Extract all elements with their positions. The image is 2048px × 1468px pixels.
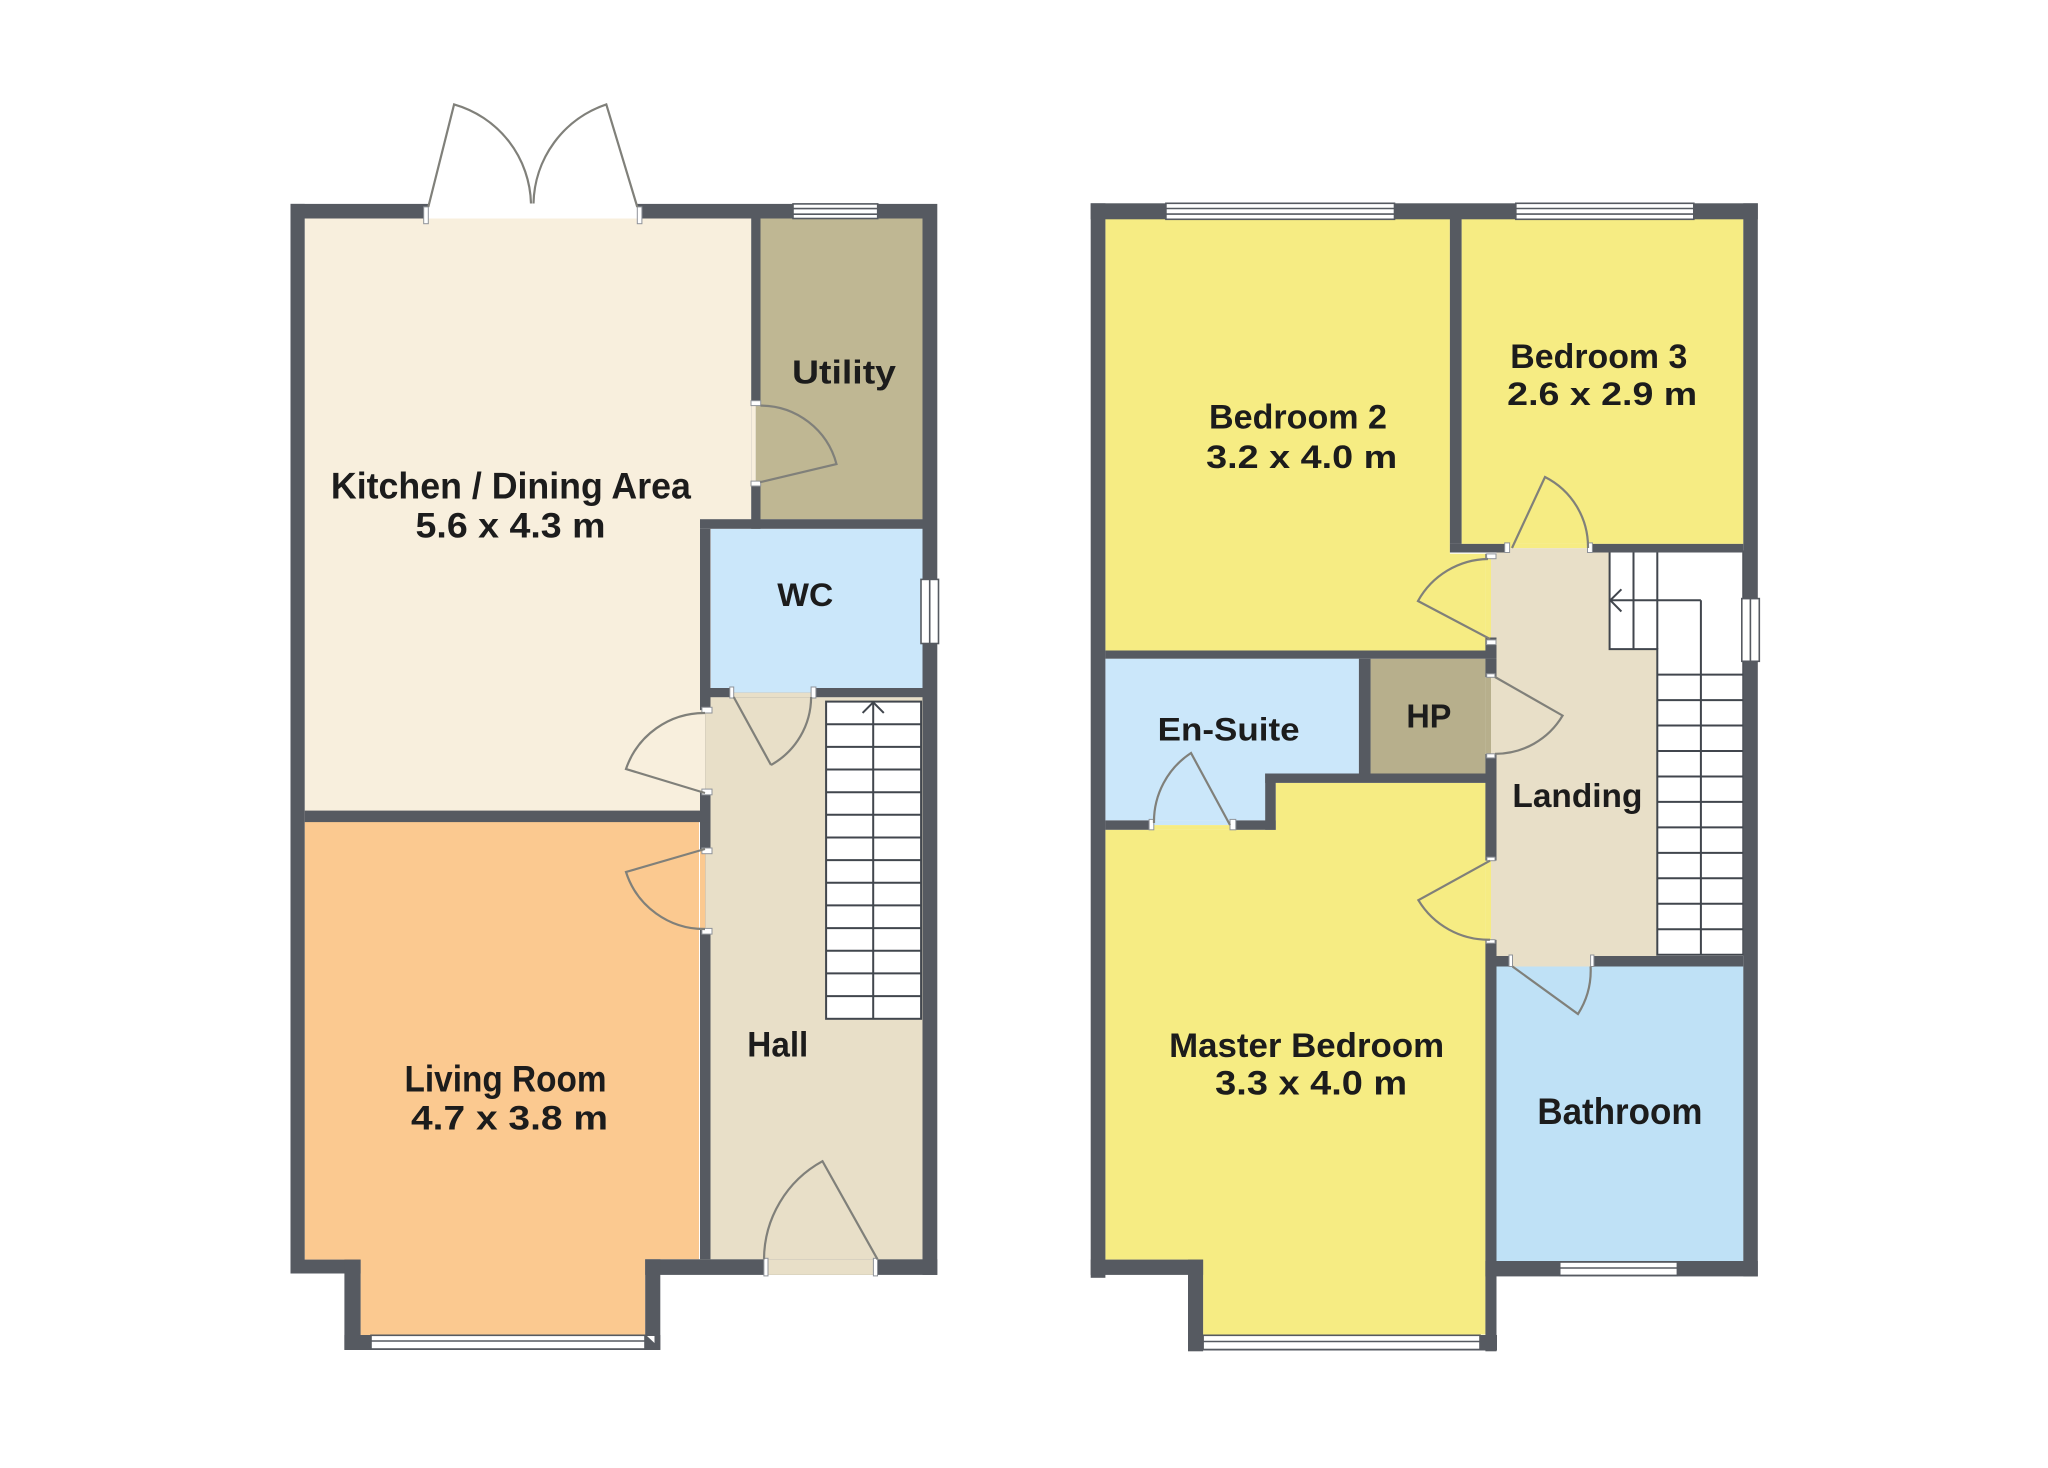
svg-text:3.3 x 4.0 m: 3.3 x 4.0 m: [1215, 1064, 1407, 1102]
svg-text:Master Bedroom: Master Bedroom: [1169, 1027, 1444, 1065]
svg-text:Living Room: Living Room: [405, 1057, 607, 1099]
svg-text:En-Suite: En-Suite: [1158, 712, 1300, 748]
svg-text:Hall: Hall: [747, 1025, 808, 1065]
svg-text:Landing: Landing: [1512, 777, 1642, 815]
svg-text:Bathroom: Bathroom: [1537, 1091, 1702, 1132]
svg-text:Bedroom 3: Bedroom 3: [1510, 338, 1687, 376]
svg-text:Bedroom 2: Bedroom 2: [1209, 398, 1387, 436]
svg-text:3.2 x 4.0 m: 3.2 x 4.0 m: [1206, 439, 1397, 475]
svg-text:Utility: Utility: [792, 354, 897, 391]
svg-text:4.7 x 3.8 m: 4.7 x 3.8 m: [411, 1100, 608, 1138]
svg-text:Kitchen / Dining Area: Kitchen / Dining Area: [331, 466, 691, 507]
svg-text:2.6 x 2.9 m: 2.6 x 2.9 m: [1507, 376, 1697, 412]
svg-text:HP: HP: [1406, 699, 1451, 736]
svg-text:WC: WC: [777, 577, 833, 613]
svg-text:5.6 x 4.3 m: 5.6 x 4.3 m: [416, 506, 606, 546]
